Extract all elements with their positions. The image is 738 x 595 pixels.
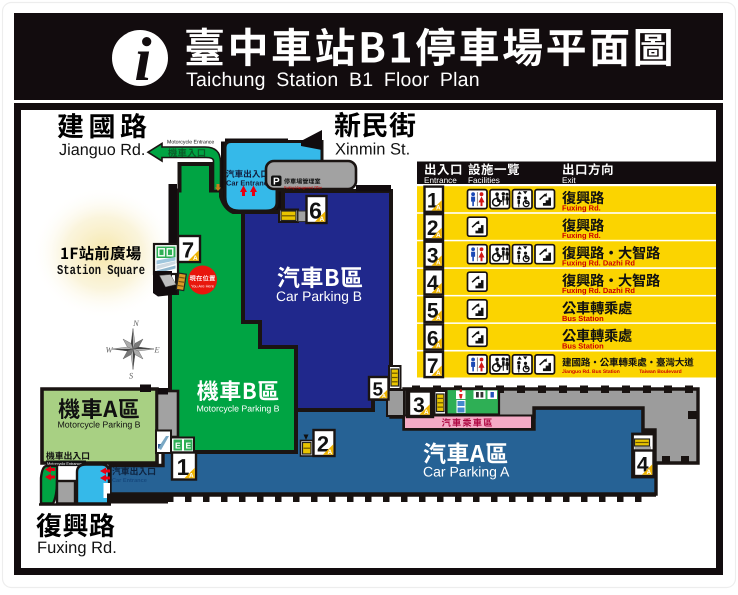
svg-text:i: i [134, 26, 151, 94]
svg-text:Fuxing Rd.: Fuxing Rd. [562, 231, 601, 240]
svg-text:A: A [436, 205, 441, 212]
svg-text:A: A [320, 216, 325, 223]
svg-text:W: W [105, 345, 113, 355]
svg-text:Bus Station: Bus Station [562, 314, 604, 323]
svg-text:A: A [436, 342, 441, 349]
svg-text:Car Parking B: Car Parking B [276, 289, 362, 304]
svg-text:A: A [189, 472, 194, 479]
svg-text:Motorcycle Parking B: Motorcycle Parking B [57, 420, 140, 430]
svg-text:A: A [382, 393, 386, 399]
svg-text:Facilities: Facilities [468, 176, 500, 185]
svg-text:Jianguo Rd. Bus Station: Jianguo Rd. Bus Station Taiwan Boulevard [562, 369, 682, 375]
svg-text:Fuxing Rd.: Fuxing Rd. [562, 204, 601, 213]
svg-text:Car Parking A: Car Parking A [423, 464, 510, 480]
svg-text:E: E [175, 441, 181, 451]
svg-text:Motorcycle Parking B: Motorcycle Parking B [196, 404, 279, 414]
svg-text:E: E [185, 441, 191, 451]
svg-text:Jianguo Rd.: Jianguo Rd. [59, 141, 145, 159]
svg-text:Fuxing Rd. Dazhi Rd: Fuxing Rd. Dazhi Rd [562, 259, 635, 268]
svg-text:A: A [424, 409, 429, 416]
svg-text:A: A [328, 449, 333, 456]
svg-text:A: A [436, 260, 441, 267]
svg-text:Exit: Exit [562, 176, 576, 185]
svg-text:E: E [153, 345, 160, 355]
svg-text:Motorcycle Entrance: Motorcycle Entrance [167, 140, 214, 146]
svg-text:A: A [436, 232, 441, 239]
svg-text:Station Square: Station Square [57, 264, 145, 279]
svg-text:Fuxing Rd. Dazhi Rd: Fuxing Rd. Dazhi Rd [562, 286, 635, 295]
svg-text:Parking Management Office: Parking Management Office [284, 185, 322, 190]
svg-text:Fuxing Rd.: Fuxing Rd. [37, 539, 117, 557]
svg-text:A: A [436, 315, 441, 322]
svg-text:P: P [273, 177, 280, 188]
svg-text:Xinmin St.: Xinmin St. [335, 141, 410, 159]
svg-text:A: A [193, 255, 198, 262]
svg-text:You Are Here: You Are Here [191, 284, 214, 289]
svg-text:Car Entrance: Car Entrance [112, 478, 147, 484]
svg-text:Bus Station: Bus Station [562, 341, 604, 350]
svg-text:Taichung Station B1 Floor: Taichung Station B1 Floor Plan [186, 69, 480, 91]
svg-text:A: A [436, 287, 441, 294]
svg-text:A: A [647, 469, 652, 476]
svg-text:A: A [436, 370, 441, 377]
svg-text:Entrance: Entrance [424, 176, 457, 185]
